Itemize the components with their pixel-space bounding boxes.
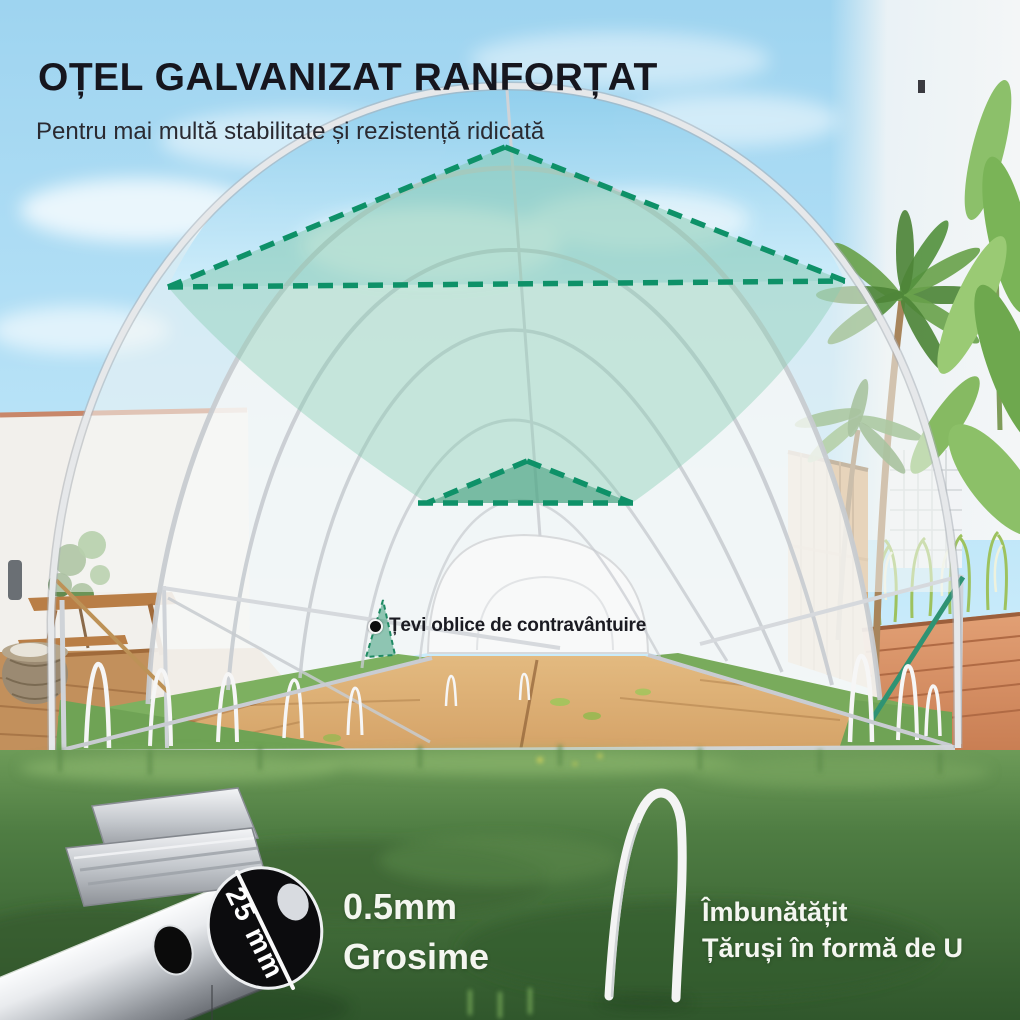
product-infographic: 25 mm OȚEL GALVANIZAT RANFORȚAT Pentru m… [0, 0, 1020, 1020]
bracing-label: Țevi oblice de contravântuire [389, 615, 646, 637]
greenhouse-scene-photo: 25 mm [0, 0, 1020, 1020]
thickness-callout: 0.5mm Grosime [343, 882, 489, 982]
stake-improved-label: Îmbunătățit [702, 894, 963, 930]
thickness-label: Grosime [343, 932, 489, 982]
page-title: OȚEL GALVANIZAT RANFORȚAT [38, 56, 738, 100]
stake-callout: Îmbunătățit Țăruși în formă de U [702, 894, 963, 966]
stake-type-label: Țăruși în formă de U [702, 930, 963, 966]
thermos [8, 560, 22, 600]
bracing-callout: Țevi oblice de contravântuire [368, 615, 646, 637]
wicker-basket [2, 642, 68, 704]
distant-object [918, 80, 925, 93]
bullet-dot-icon [368, 619, 383, 634]
thickness-value: 0.5mm [343, 882, 489, 932]
page-subtitle: Pentru mai multă stabilitate și rezisten… [36, 118, 736, 146]
